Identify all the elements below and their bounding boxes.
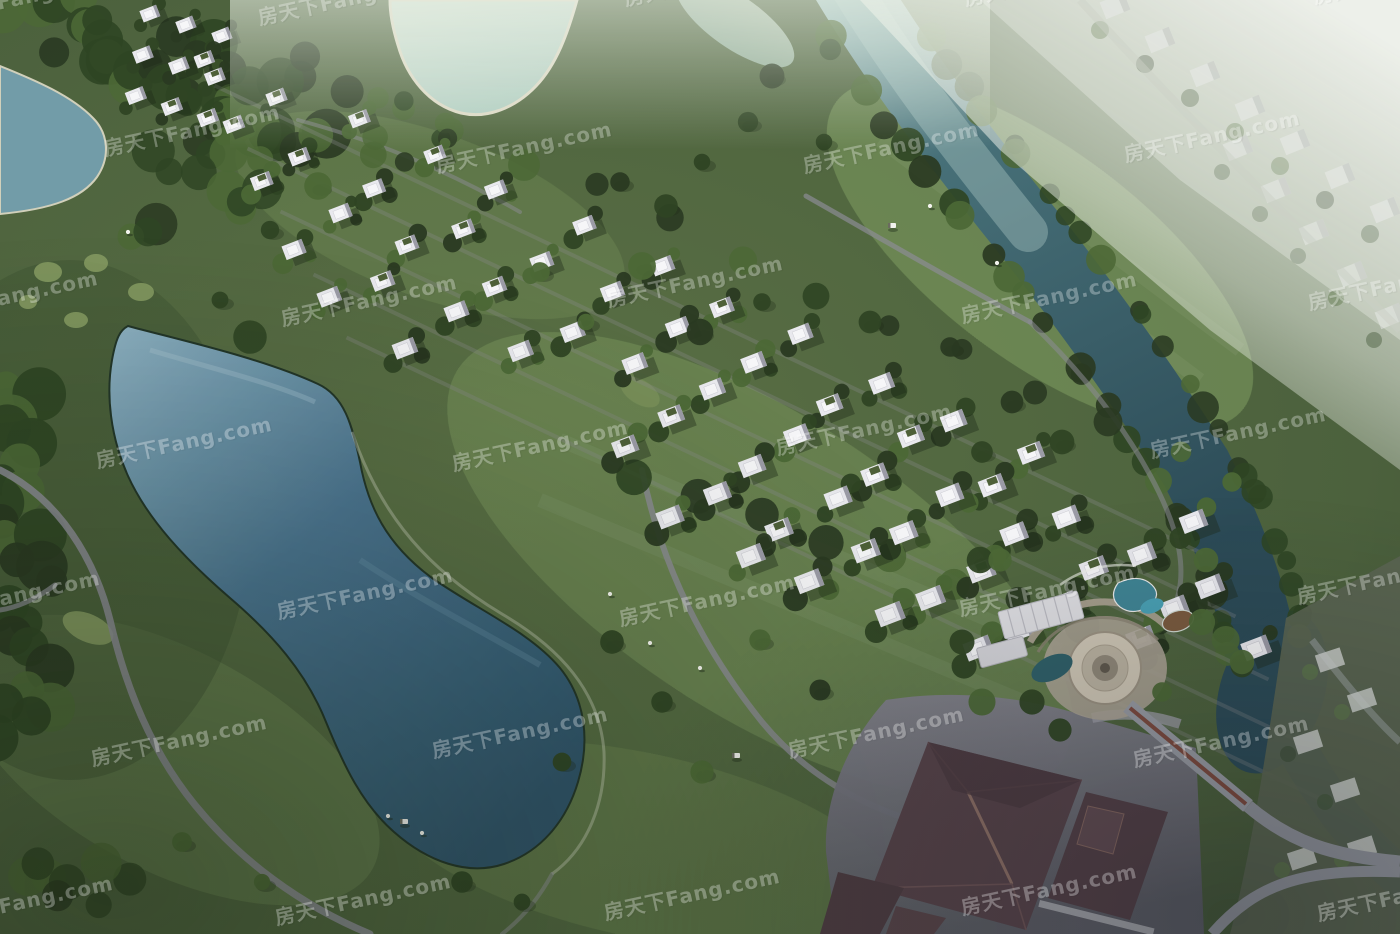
scene-svg <box>0 0 1400 934</box>
vignette-bottom-right <box>0 0 1400 934</box>
aerial-rendering: 房天下Fang.com房天下Fang.com房天下Fang.com房天下Fang… <box>0 0 1400 934</box>
